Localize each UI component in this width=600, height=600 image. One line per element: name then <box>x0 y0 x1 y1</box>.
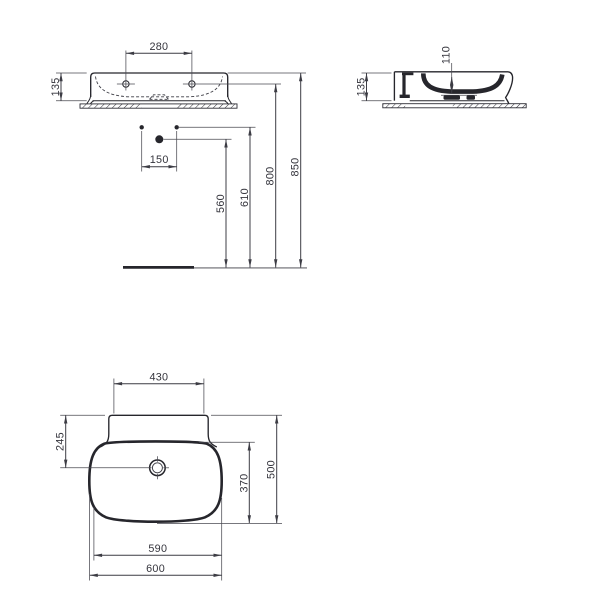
dim-label-590: 590 <box>148 543 167 555</box>
technical-drawing-canvas: 280 135 150 560 610 <box>0 0 600 600</box>
supply-point-left <box>140 125 144 129</box>
right-taphole-symbol <box>183 51 281 91</box>
side-front-edge <box>506 72 513 104</box>
dim-label-front-135: 135 <box>50 77 62 96</box>
dim-waste-height: 560 <box>215 139 227 267</box>
dim-label-500: 500 <box>266 460 278 479</box>
dim-front-basin-height: 135 <box>50 73 87 101</box>
front-basin-left-foot <box>87 95 91 104</box>
front-view: 280 135 150 560 610 <box>50 41 307 268</box>
front-hatch-right <box>176 104 237 108</box>
dim-label-side-135: 135 <box>356 77 368 96</box>
dim-label-370: 370 <box>238 474 250 493</box>
dim-side-basin-height: 135 <box>356 73 392 101</box>
dim-label-430: 430 <box>149 371 168 383</box>
waste-point <box>155 135 163 143</box>
dim-label-850: 850 <box>290 158 302 177</box>
side-bracket-section <box>400 73 414 98</box>
dim-label-600: 600 <box>146 563 165 575</box>
drain-symbol <box>150 456 169 479</box>
side-view: 135 110 <box>356 46 527 108</box>
dim-label-610: 610 <box>239 188 251 207</box>
dim-label-245: 245 <box>55 432 67 451</box>
side-waste-fitting <box>441 95 477 100</box>
side-hatch-right <box>453 104 526 108</box>
dim-bowl-front-depth: 370 <box>199 442 255 523</box>
front-hatch-left <box>80 104 142 108</box>
dim-label-150: 150 <box>150 154 169 166</box>
side-hatch-left <box>383 104 405 108</box>
dim-taphole-height: 800 <box>265 84 277 267</box>
plan-bowl-outline <box>89 441 221 521</box>
dim-overall-depth: 500 <box>157 415 282 523</box>
side-wall-bracket-strip <box>383 104 526 108</box>
front-basin-right-foot <box>228 95 232 104</box>
plan-view: 430 245 370 500 590 <box>55 371 282 580</box>
dim-label-110: 110 <box>441 46 453 64</box>
dim-label-280: 280 <box>149 41 168 53</box>
dim-bowl-depth: 110 <box>441 46 453 93</box>
front-inner-bowl-hidden-line <box>96 77 223 97</box>
dim-overall-width: 600 <box>90 494 222 581</box>
dim-label-800: 800 <box>265 167 277 186</box>
dim-back-ledge-width: 430 <box>114 371 204 413</box>
washbasin-drawing: 280 135 150 560 610 <box>0 0 600 600</box>
front-wall-bracket-strip <box>80 104 237 108</box>
dim-bowl-width: 590 <box>94 507 222 561</box>
dim-taphole-spacing: 280 <box>126 41 192 53</box>
dim-supply-height: 610 <box>239 127 251 267</box>
side-bowl-wall-section <box>423 73 502 91</box>
dim-label-560: 560 <box>215 194 227 213</box>
dim-rim-height: 850 <box>290 73 302 267</box>
left-taphole-symbol <box>117 51 135 91</box>
supply-point-right <box>175 125 179 129</box>
